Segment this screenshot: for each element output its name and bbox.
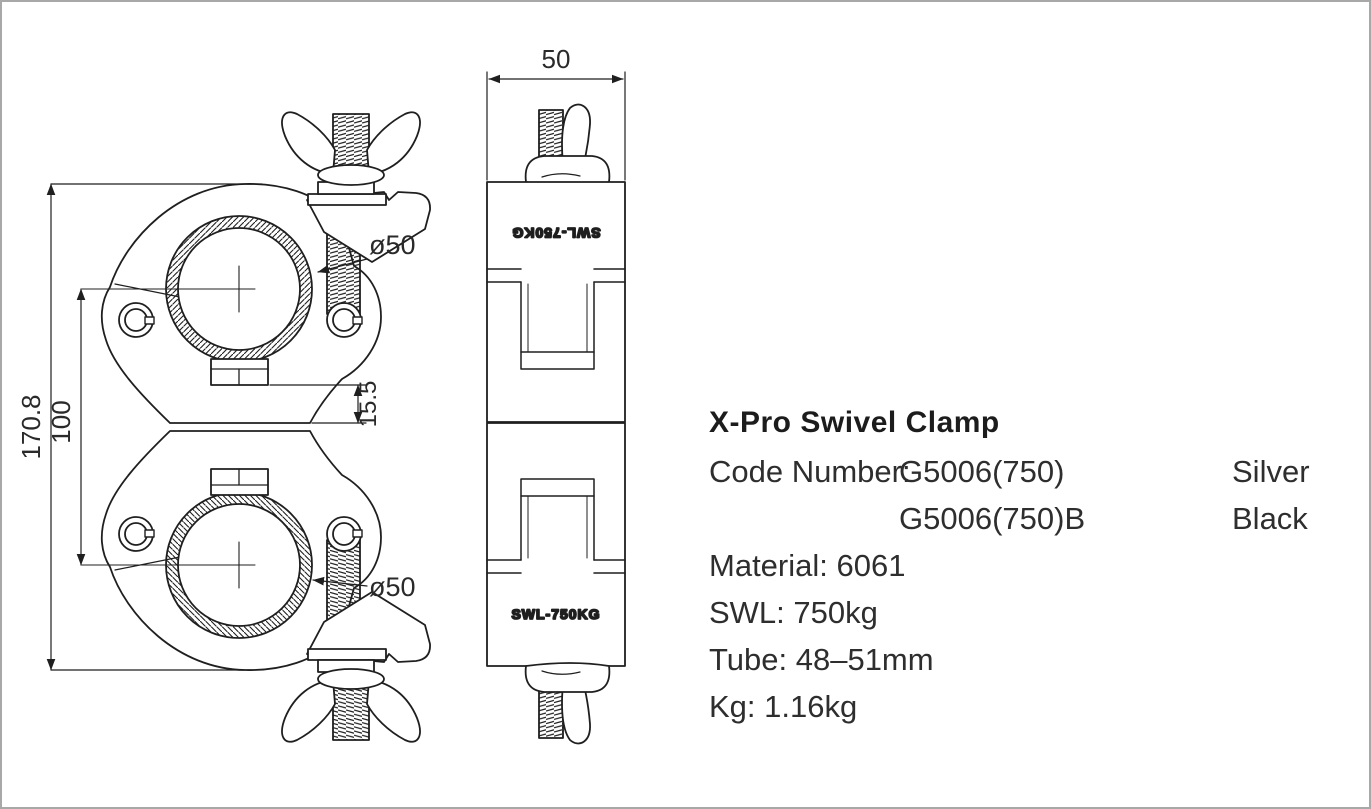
dim-label-50: 50 [542, 44, 571, 74]
spec-material: Material: 6061 [709, 548, 905, 584]
code-row-1: Code Number: G5006(750) Silver [709, 454, 1349, 494]
swl-marking-top: SWL-750KG [511, 225, 600, 241]
dim-label-dia50-bottom: ø50 [369, 572, 416, 602]
code-number-label: Code Number: [709, 454, 911, 490]
datasheet-page: 170.8 100 15.5 ø50 [0, 0, 1371, 809]
top-bolt-threads [539, 110, 563, 162]
swl-marking-bottom: SWL-750KG [511, 606, 600, 622]
dim-label-170-8: 170.8 [16, 394, 46, 459]
hinge-block [211, 359, 268, 385]
bottom-wing-base [526, 663, 610, 692]
spec-block: X-Pro Swivel Clamp Code Number: G5006(75… [709, 406, 1349, 440]
side-view: 50 S [487, 44, 625, 743]
finish-silver: Silver [1232, 454, 1310, 490]
spec-swl: SWL: 750kg [709, 595, 878, 631]
code-row-2: G5006(750)B Black [709, 501, 1349, 541]
dim-label-15-5: 15.5 [355, 381, 382, 428]
spec-tube: Tube: 48–51mm [709, 642, 934, 678]
top-wing-base [526, 156, 610, 185]
wing-left [282, 112, 335, 174]
finish-black: Black [1232, 501, 1308, 537]
top-wing-bolt [526, 105, 610, 185]
clamp-half-upper [82, 112, 430, 423]
pin-left [119, 303, 154, 337]
wing-right [367, 112, 420, 174]
washer-plate [308, 194, 386, 205]
dim-label-100: 100 [46, 400, 76, 443]
front-view: 170.8 100 15.5 ø50 [16, 112, 430, 741]
side-body-upper [487, 182, 625, 422]
bottom-wing-bolt [526, 663, 610, 743]
dim-label-dia50-top: ø50 [369, 230, 416, 260]
bottom-bolt-threads [539, 686, 563, 738]
product-title: X-Pro Swivel Clamp [709, 406, 1349, 440]
code-number-black: G5006(750)B [899, 501, 1085, 537]
code-number-silver: G5006(750) [899, 454, 1064, 490]
side-body-lower [487, 423, 625, 666]
spec-weight: Kg: 1.16kg [709, 689, 857, 725]
pin-right [327, 303, 362, 337]
wing-nut [282, 112, 420, 185]
wing-nut-base [318, 165, 384, 185]
